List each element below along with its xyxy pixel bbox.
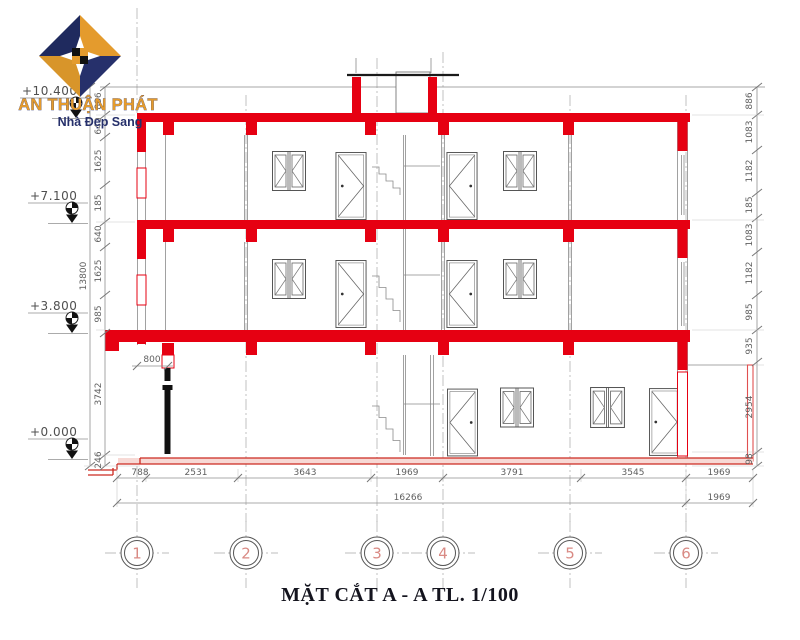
dim-label: 1969	[396, 468, 419, 478]
window-pair	[591, 388, 625, 428]
dim-label: 985	[745, 303, 755, 320]
door	[447, 260, 477, 327]
dim-label: 985	[94, 305, 104, 322]
dimension-chain-right: 886 1083 1182 185 1083 1182 985 935 2954…	[692, 83, 764, 470]
grid-bubble-label: 3	[372, 545, 382, 563]
grid-bubble-2: 2	[214, 521, 278, 588]
elevation-label: +0.000	[30, 425, 77, 439]
elevation-floor2: +3.800	[28, 299, 88, 334]
dim-label: 788	[131, 468, 148, 478]
section-drawing: +10.400 +7.100 +3.800	[0, 0, 800, 640]
door	[447, 389, 477, 456]
door	[447, 152, 477, 219]
dim-label: 2531	[185, 468, 208, 478]
dim-overall-label: 13800	[79, 261, 89, 290]
dim-label: 1182	[745, 160, 755, 183]
dim-label: 640	[94, 225, 104, 242]
elevation-ground: +0.000	[28, 425, 88, 460]
floor-slabs	[105, 113, 690, 351]
slab-level-3	[137, 220, 690, 229]
dim-label: 1083	[745, 224, 755, 247]
dim-label: 1969	[708, 493, 731, 503]
architectural-drawing-sheet: +10.400 +7.100 +3.800	[0, 0, 800, 640]
dimension-chain-left: 886 640 1625 185 640 1625 985 3742 246 1…	[79, 83, 140, 470]
dim-label: 185	[745, 196, 755, 213]
grid-bubble-1: 1	[105, 521, 169, 588]
dim-label: 935	[745, 337, 755, 354]
staircase	[372, 166, 440, 452]
grid-bubble-3: 3	[345, 521, 409, 588]
grid-bubble-label: 4	[438, 545, 448, 563]
dim-label: 3742	[94, 383, 104, 406]
dim-label: 3791	[501, 468, 524, 478]
door	[336, 152, 366, 219]
elevation-label: +3.800	[30, 299, 77, 313]
grid-bubble-4: 4	[411, 521, 475, 588]
elevation-floor3: +7.100	[28, 189, 88, 224]
dim-label: 3643	[294, 468, 317, 478]
logo-company-name: AN THUẬN PHÁT	[18, 95, 158, 114]
grid-bubble-label: 2	[241, 545, 251, 563]
drawing-title: MẶT CẮT A - A TL. 1/100	[281, 582, 519, 606]
dim-label: 886	[745, 92, 755, 109]
grid-bubbles: 1 2 3 4 5 6	[105, 521, 718, 588]
dim-overall-label: 16266	[394, 493, 423, 503]
dim-label: 1182	[745, 262, 755, 285]
dim-label: 800	[143, 355, 160, 365]
dim-label: 98	[745, 453, 755, 465]
grid-bubble-label: 1	[132, 545, 142, 563]
door	[336, 260, 366, 327]
side-annex	[688, 365, 753, 461]
grid-bubble-5: 5	[538, 521, 602, 588]
building-section	[88, 58, 753, 475]
dim-label: 1083	[745, 121, 755, 144]
dimension-chain-bottom: 788 2531 3643 1969 3791 3545 1969 16266 …	[113, 468, 757, 507]
dim-label: 1625	[94, 150, 104, 173]
roof-slab	[137, 113, 690, 122]
elevation-marker-icon	[48, 202, 88, 224]
dim-label: 1969	[708, 468, 731, 478]
roof-bulkhead	[347, 58, 459, 113]
dim-label: 2954	[745, 395, 755, 418]
window-pair	[273, 260, 306, 299]
left-wall	[137, 115, 146, 345]
entry-post	[162, 343, 174, 454]
slab-level-2	[105, 330, 690, 342]
dim-label: 3545	[622, 468, 645, 478]
dim-label: 1625	[94, 260, 104, 283]
dim-label: 246	[94, 451, 104, 468]
window-pair	[504, 260, 537, 299]
window-pair	[501, 388, 534, 427]
grid-bubble-label: 5	[565, 545, 575, 563]
window-pair	[504, 152, 537, 191]
grid-bubble-label: 6	[681, 545, 691, 563]
elevation-marker-icon	[48, 312, 88, 334]
elevation-label: +7.100	[30, 189, 77, 203]
window-pair	[273, 152, 306, 191]
dim-label: 185	[94, 194, 104, 211]
elevation-marker-icon	[48, 438, 88, 460]
door	[649, 389, 679, 456]
grid-bubble-6: 6	[654, 521, 718, 588]
logo-tagline: Nhà Đẹp Sang	[58, 115, 143, 129]
